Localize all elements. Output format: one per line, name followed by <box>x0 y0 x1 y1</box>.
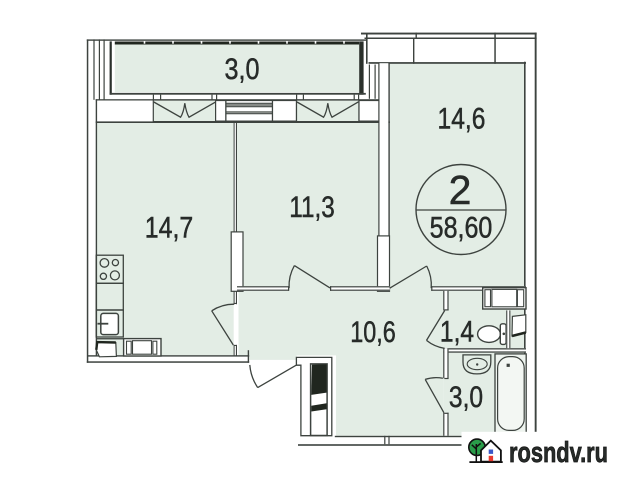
svg-text:14,7: 14,7 <box>145 210 193 244</box>
svg-text:2: 2 <box>449 167 472 213</box>
svg-text:10,6: 10,6 <box>350 315 396 348</box>
svg-text:3,0: 3,0 <box>224 52 259 86</box>
svg-text:3,0: 3,0 <box>449 380 483 414</box>
svg-text:1,4: 1,4 <box>440 314 474 348</box>
svg-text:rosndv.ru: rosndv.ru <box>509 437 608 469</box>
svg-text:14,6: 14,6 <box>438 101 486 135</box>
svg-text:11,3: 11,3 <box>289 190 334 224</box>
svg-text:58,60: 58,60 <box>430 211 493 244</box>
